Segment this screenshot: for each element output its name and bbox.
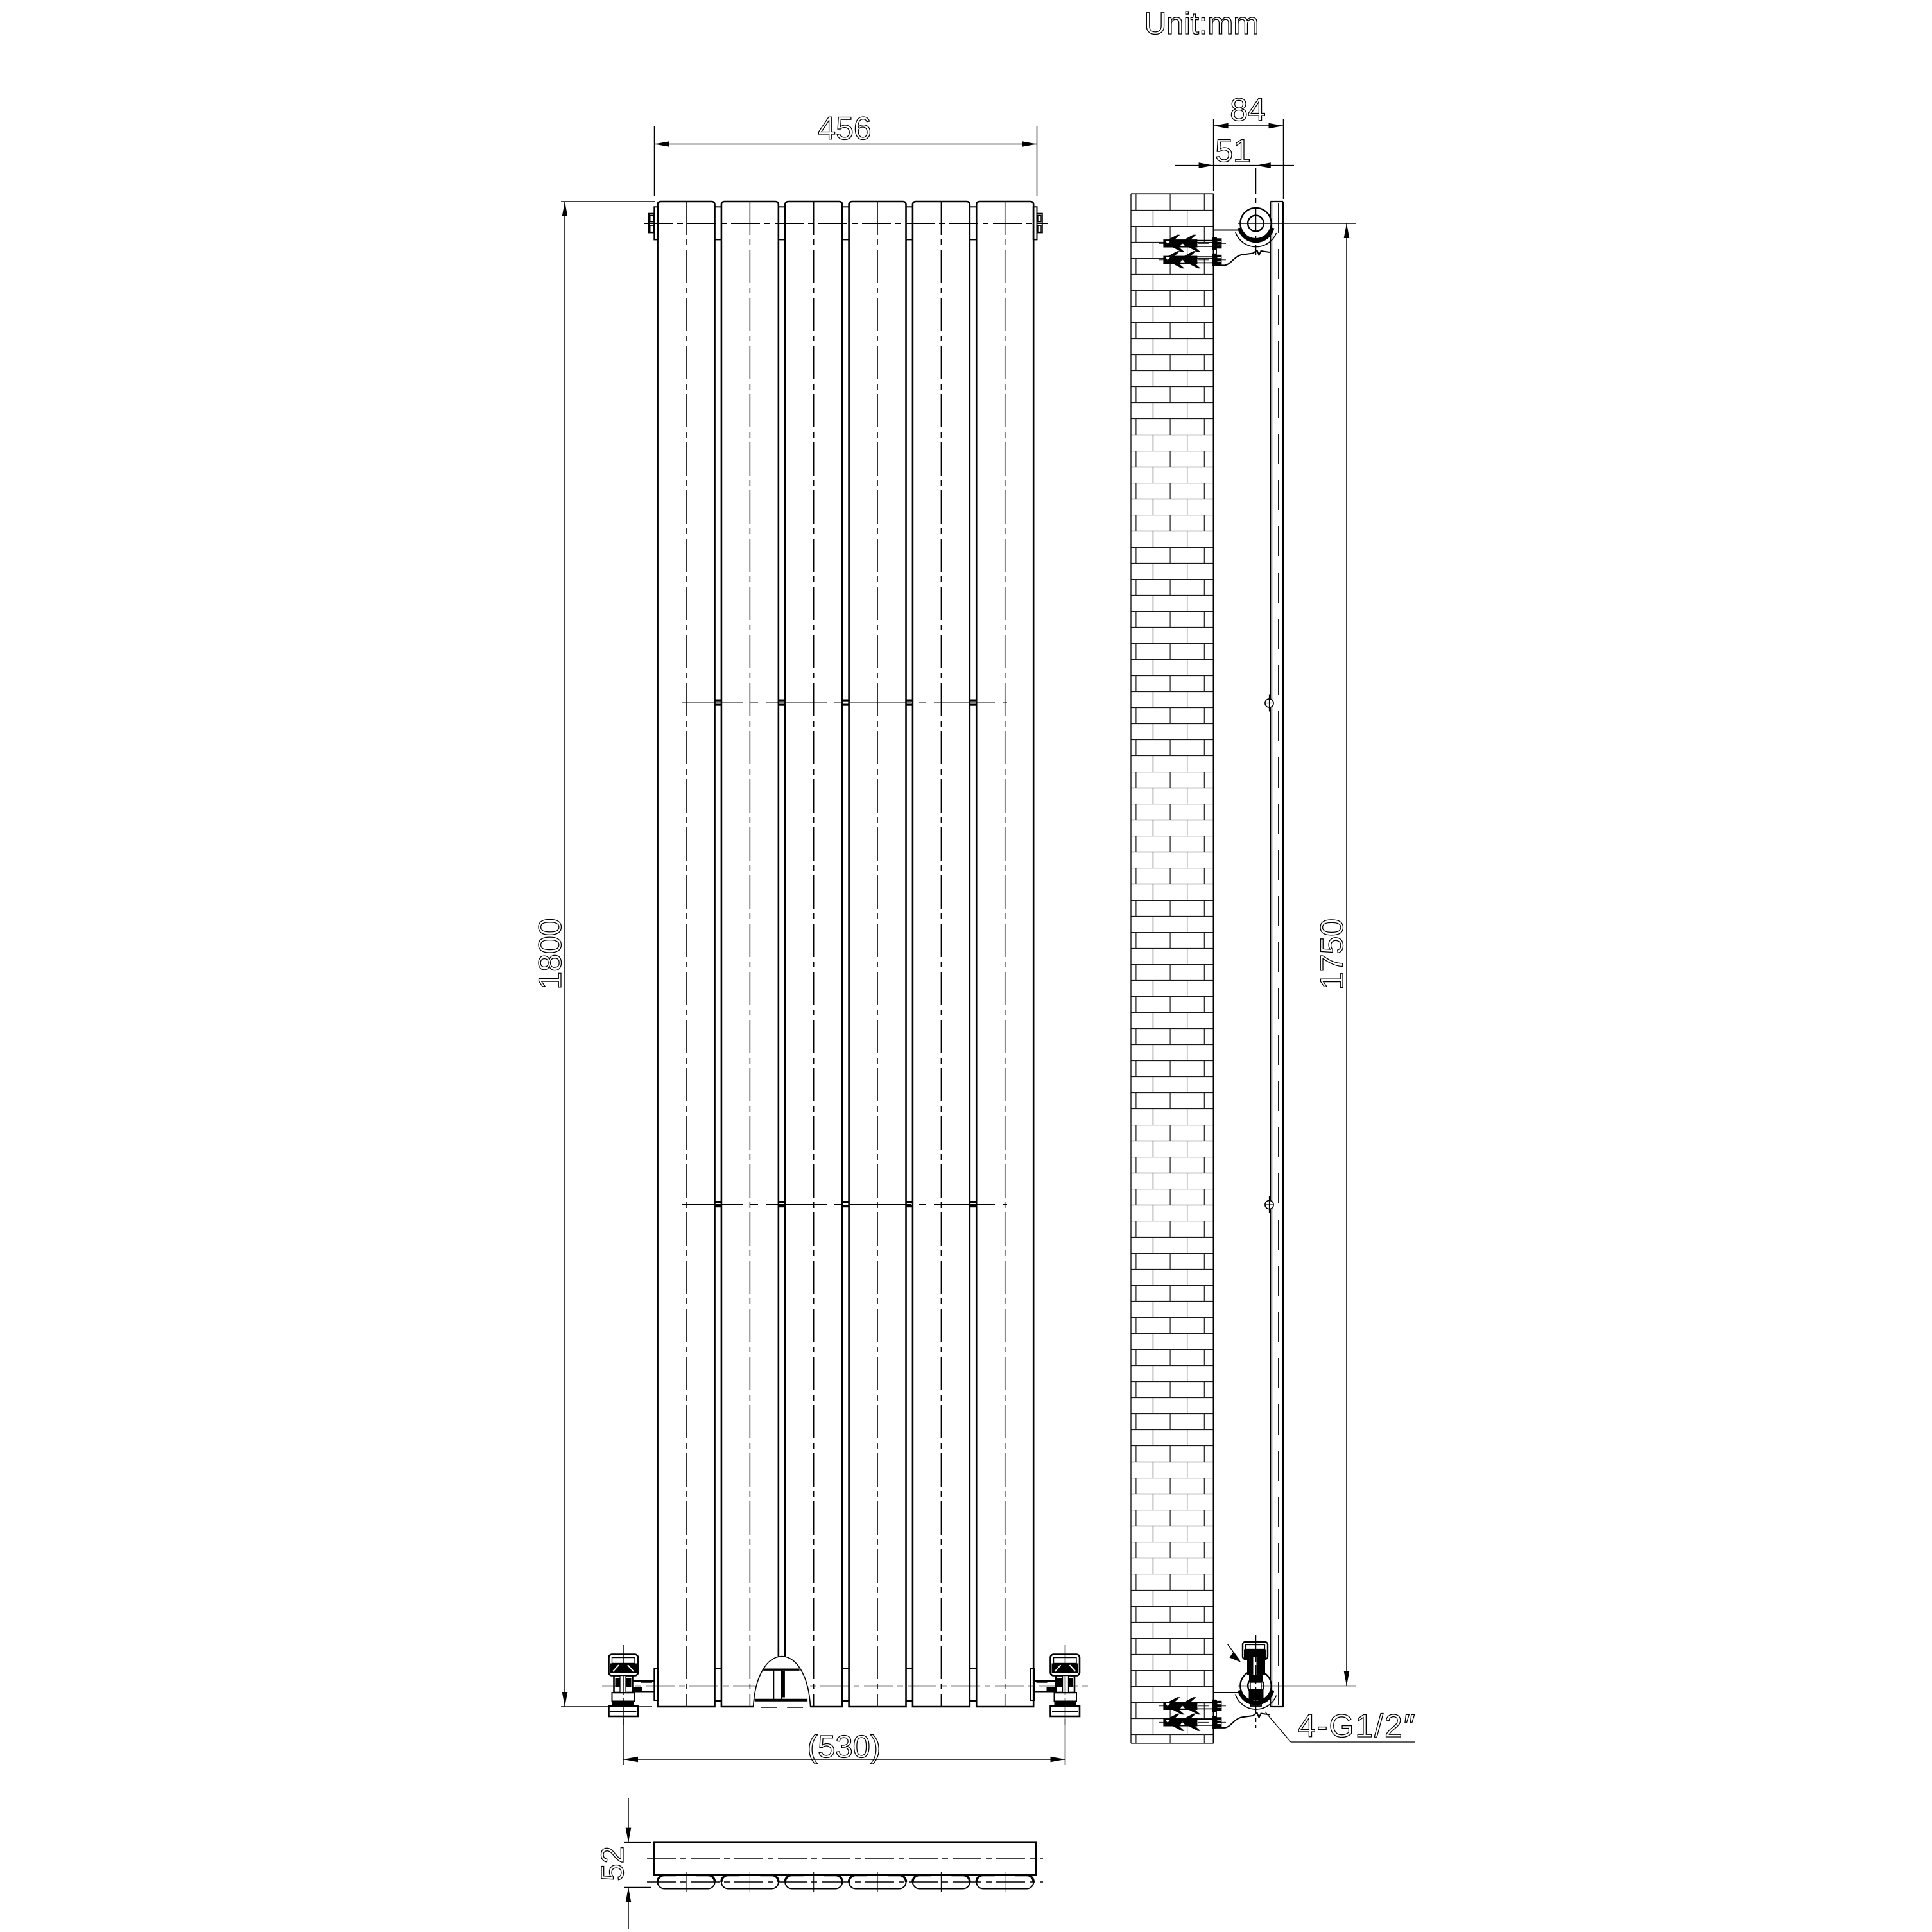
- svg-text:1750: 1750: [1314, 919, 1350, 990]
- svg-text:456: 456: [818, 110, 871, 146]
- svg-text:1800: 1800: [532, 918, 568, 989]
- svg-text:4-G1/2″: 4-G1/2″: [1298, 1708, 1417, 1744]
- svg-text:Unit:mm: Unit:mm: [1144, 7, 1259, 41]
- svg-text:84: 84: [1230, 92, 1266, 128]
- svg-text:51: 51: [1215, 133, 1251, 169]
- svg-text:(530): (530): [807, 1730, 881, 1764]
- svg-text:52: 52: [596, 1846, 630, 1881]
